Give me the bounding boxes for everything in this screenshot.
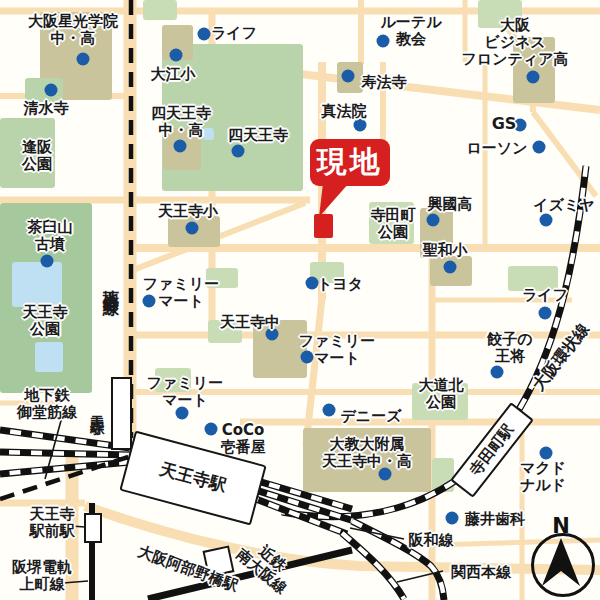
compass-n-label: N [552,514,570,538]
compass-arrow-svg [0,0,600,600]
compass: N [0,0,600,600]
north-arrow-icon [542,538,580,586]
map-canvas: 大阪星光学院中・高ライフ大江小ルーテル教会大阪ビジネスフロンティア高清水寺四天王… [0,0,600,600]
